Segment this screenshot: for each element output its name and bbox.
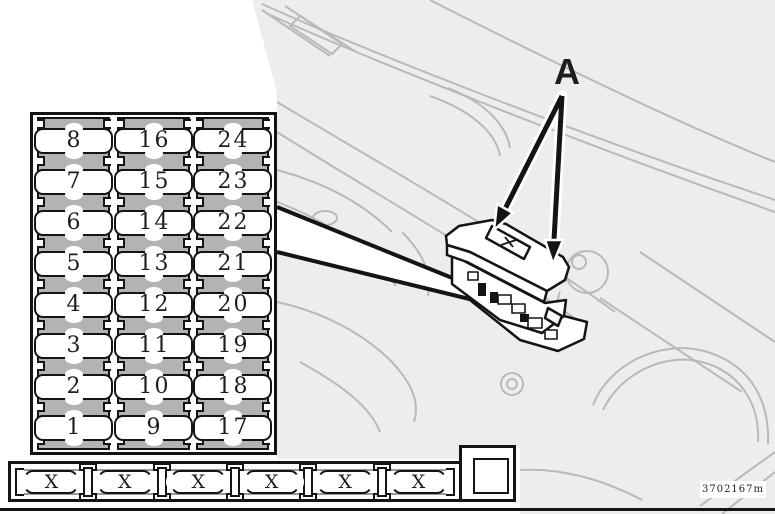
fuse-number: 13 (137, 253, 171, 275)
strip-notch (196, 279, 204, 289)
strip-notch (117, 279, 125, 289)
relay-housing (459, 445, 516, 502)
strip-notch (183, 156, 191, 166)
fuse-6: 6 (34, 210, 113, 236)
figure-page: { "figure": { "callout_label": "A", "dra… (0, 0, 775, 514)
strip-notch (262, 402, 270, 412)
fuse-12: 12 (114, 292, 193, 318)
fuse-number: 1 (65, 417, 83, 439)
fuse-4: 4 (34, 292, 113, 318)
spare-fuse: X (318, 470, 372, 494)
fuse-19: 19 (193, 333, 272, 359)
strip-notch (196, 361, 204, 371)
fuse-number: 16 (137, 130, 171, 152)
strip-notch (103, 156, 111, 166)
fuse-22: 22 (193, 210, 272, 236)
strip-notch (117, 197, 125, 207)
fuse-column-2: 161514131211109 (117, 117, 190, 450)
fuse-number: 7 (65, 171, 83, 193)
fuse-panel: 876543211615141312111092423222120191817 (30, 112, 277, 455)
strip-notch (117, 156, 125, 166)
spare-fuse: X (245, 470, 299, 494)
strip-notch (262, 197, 270, 207)
fuse-number: 18 (216, 376, 250, 398)
strip-notch (103, 320, 111, 330)
strip-notch (196, 197, 204, 207)
fuse-number: 6 (65, 212, 83, 234)
spare-fuse-label: X (45, 471, 59, 493)
strip-notch (183, 197, 191, 207)
spare-fuse: X (98, 470, 152, 494)
strip-notch (103, 238, 111, 248)
spare-fuse-label: X (265, 471, 279, 493)
strip-notch (183, 361, 191, 371)
fuse-number: 9 (145, 417, 163, 439)
fuse-number: 21 (216, 253, 250, 275)
fuse-3: 3 (34, 333, 113, 359)
strip-notch (103, 402, 111, 412)
fuse-number: 8 (65, 130, 83, 152)
strip-notch (183, 238, 191, 248)
fuse-number: 11 (137, 335, 171, 357)
fuse-23: 23 (193, 169, 272, 195)
fuse-10: 10 (114, 374, 193, 400)
strip-notch (103, 279, 111, 289)
strip-notch (117, 402, 125, 412)
fuse-number: 22 (216, 212, 250, 234)
strip-notch (262, 320, 270, 330)
fuse-2: 2 (34, 374, 113, 400)
fuse-column-3: 2423222120191817 (196, 117, 269, 450)
fuse-number: 3 (65, 335, 83, 357)
fuse-11: 11 (114, 333, 193, 359)
strip-notch (262, 361, 270, 371)
fuse-5: 5 (34, 251, 113, 277)
fuse-14: 14 (114, 210, 193, 236)
strip-notch (37, 361, 45, 371)
strip-notch (37, 320, 45, 330)
fuse-9: 9 (114, 415, 193, 441)
strip-notch (37, 238, 45, 248)
spare-fuse-label: X (412, 471, 426, 493)
spare-fuse: X (392, 470, 446, 494)
fuse-16: 16 (114, 128, 193, 154)
figure-bottom-rule (0, 508, 775, 511)
fuse-17: 17 (193, 415, 272, 441)
strip-notch (37, 279, 45, 289)
strip-notch (103, 197, 111, 207)
strip-notch (262, 279, 270, 289)
strip-notch (117, 320, 125, 330)
fuse-20: 20 (193, 292, 272, 318)
spare-fuse-strip: X X X X X X (8, 461, 462, 502)
fuse-number: 12 (137, 294, 171, 316)
strip-notch (37, 402, 45, 412)
fuse-7: 7 (34, 169, 113, 195)
fuse-18: 18 (193, 374, 272, 400)
strip-notch (196, 402, 204, 412)
fuse-1: 1 (34, 415, 113, 441)
strip-notch (37, 197, 45, 207)
fuse-number: 20 (216, 294, 250, 316)
fuse-number: 24 (216, 130, 250, 152)
strip-notch (262, 238, 270, 248)
strip-notch (103, 361, 111, 371)
strip-notch (196, 238, 204, 248)
fuse-number: 2 (65, 376, 83, 398)
strip-notch (196, 320, 204, 330)
spare-fuse: X (24, 470, 78, 494)
fuse-24: 24 (193, 128, 272, 154)
fuse-number: 17 (216, 417, 250, 439)
strip-notch (117, 238, 125, 248)
fuse-column-1: 87654321 (37, 117, 110, 450)
spare-strip-slots: X X X X X X (24, 464, 446, 499)
strip-end-bracket-right (446, 468, 455, 496)
strip-notch (183, 279, 191, 289)
fuse-15: 15 (114, 169, 193, 195)
strip-notch (183, 402, 191, 412)
strip-notch (183, 320, 191, 330)
spare-fuse-label: X (191, 471, 205, 493)
fuse-number: 15 (137, 171, 171, 193)
fuse-number: 23 (216, 171, 250, 193)
fuse-8: 8 (34, 128, 113, 154)
fuse-number: 14 (137, 212, 171, 234)
fuse-number: 5 (65, 253, 83, 275)
spare-fuse: X (171, 470, 225, 494)
relay-housing-slot (473, 458, 509, 494)
fuse-13: 13 (114, 251, 193, 277)
fuse-columns: 876543211615141312111092423222120191817 (33, 115, 274, 452)
spare-fuse-label: X (118, 471, 132, 493)
strip-notch (37, 156, 45, 166)
strip-notch (262, 156, 270, 166)
strip-notch (117, 361, 125, 371)
figure-code: 3702167m (700, 481, 766, 498)
fuse-number: 4 (65, 294, 83, 316)
strip-notch (196, 156, 204, 166)
fuse-number: 19 (216, 335, 250, 357)
fuse-number: 10 (137, 376, 171, 398)
spare-fuse-label: X (338, 471, 352, 493)
fuse-21: 21 (193, 251, 272, 277)
callout-label: A (548, 51, 586, 93)
